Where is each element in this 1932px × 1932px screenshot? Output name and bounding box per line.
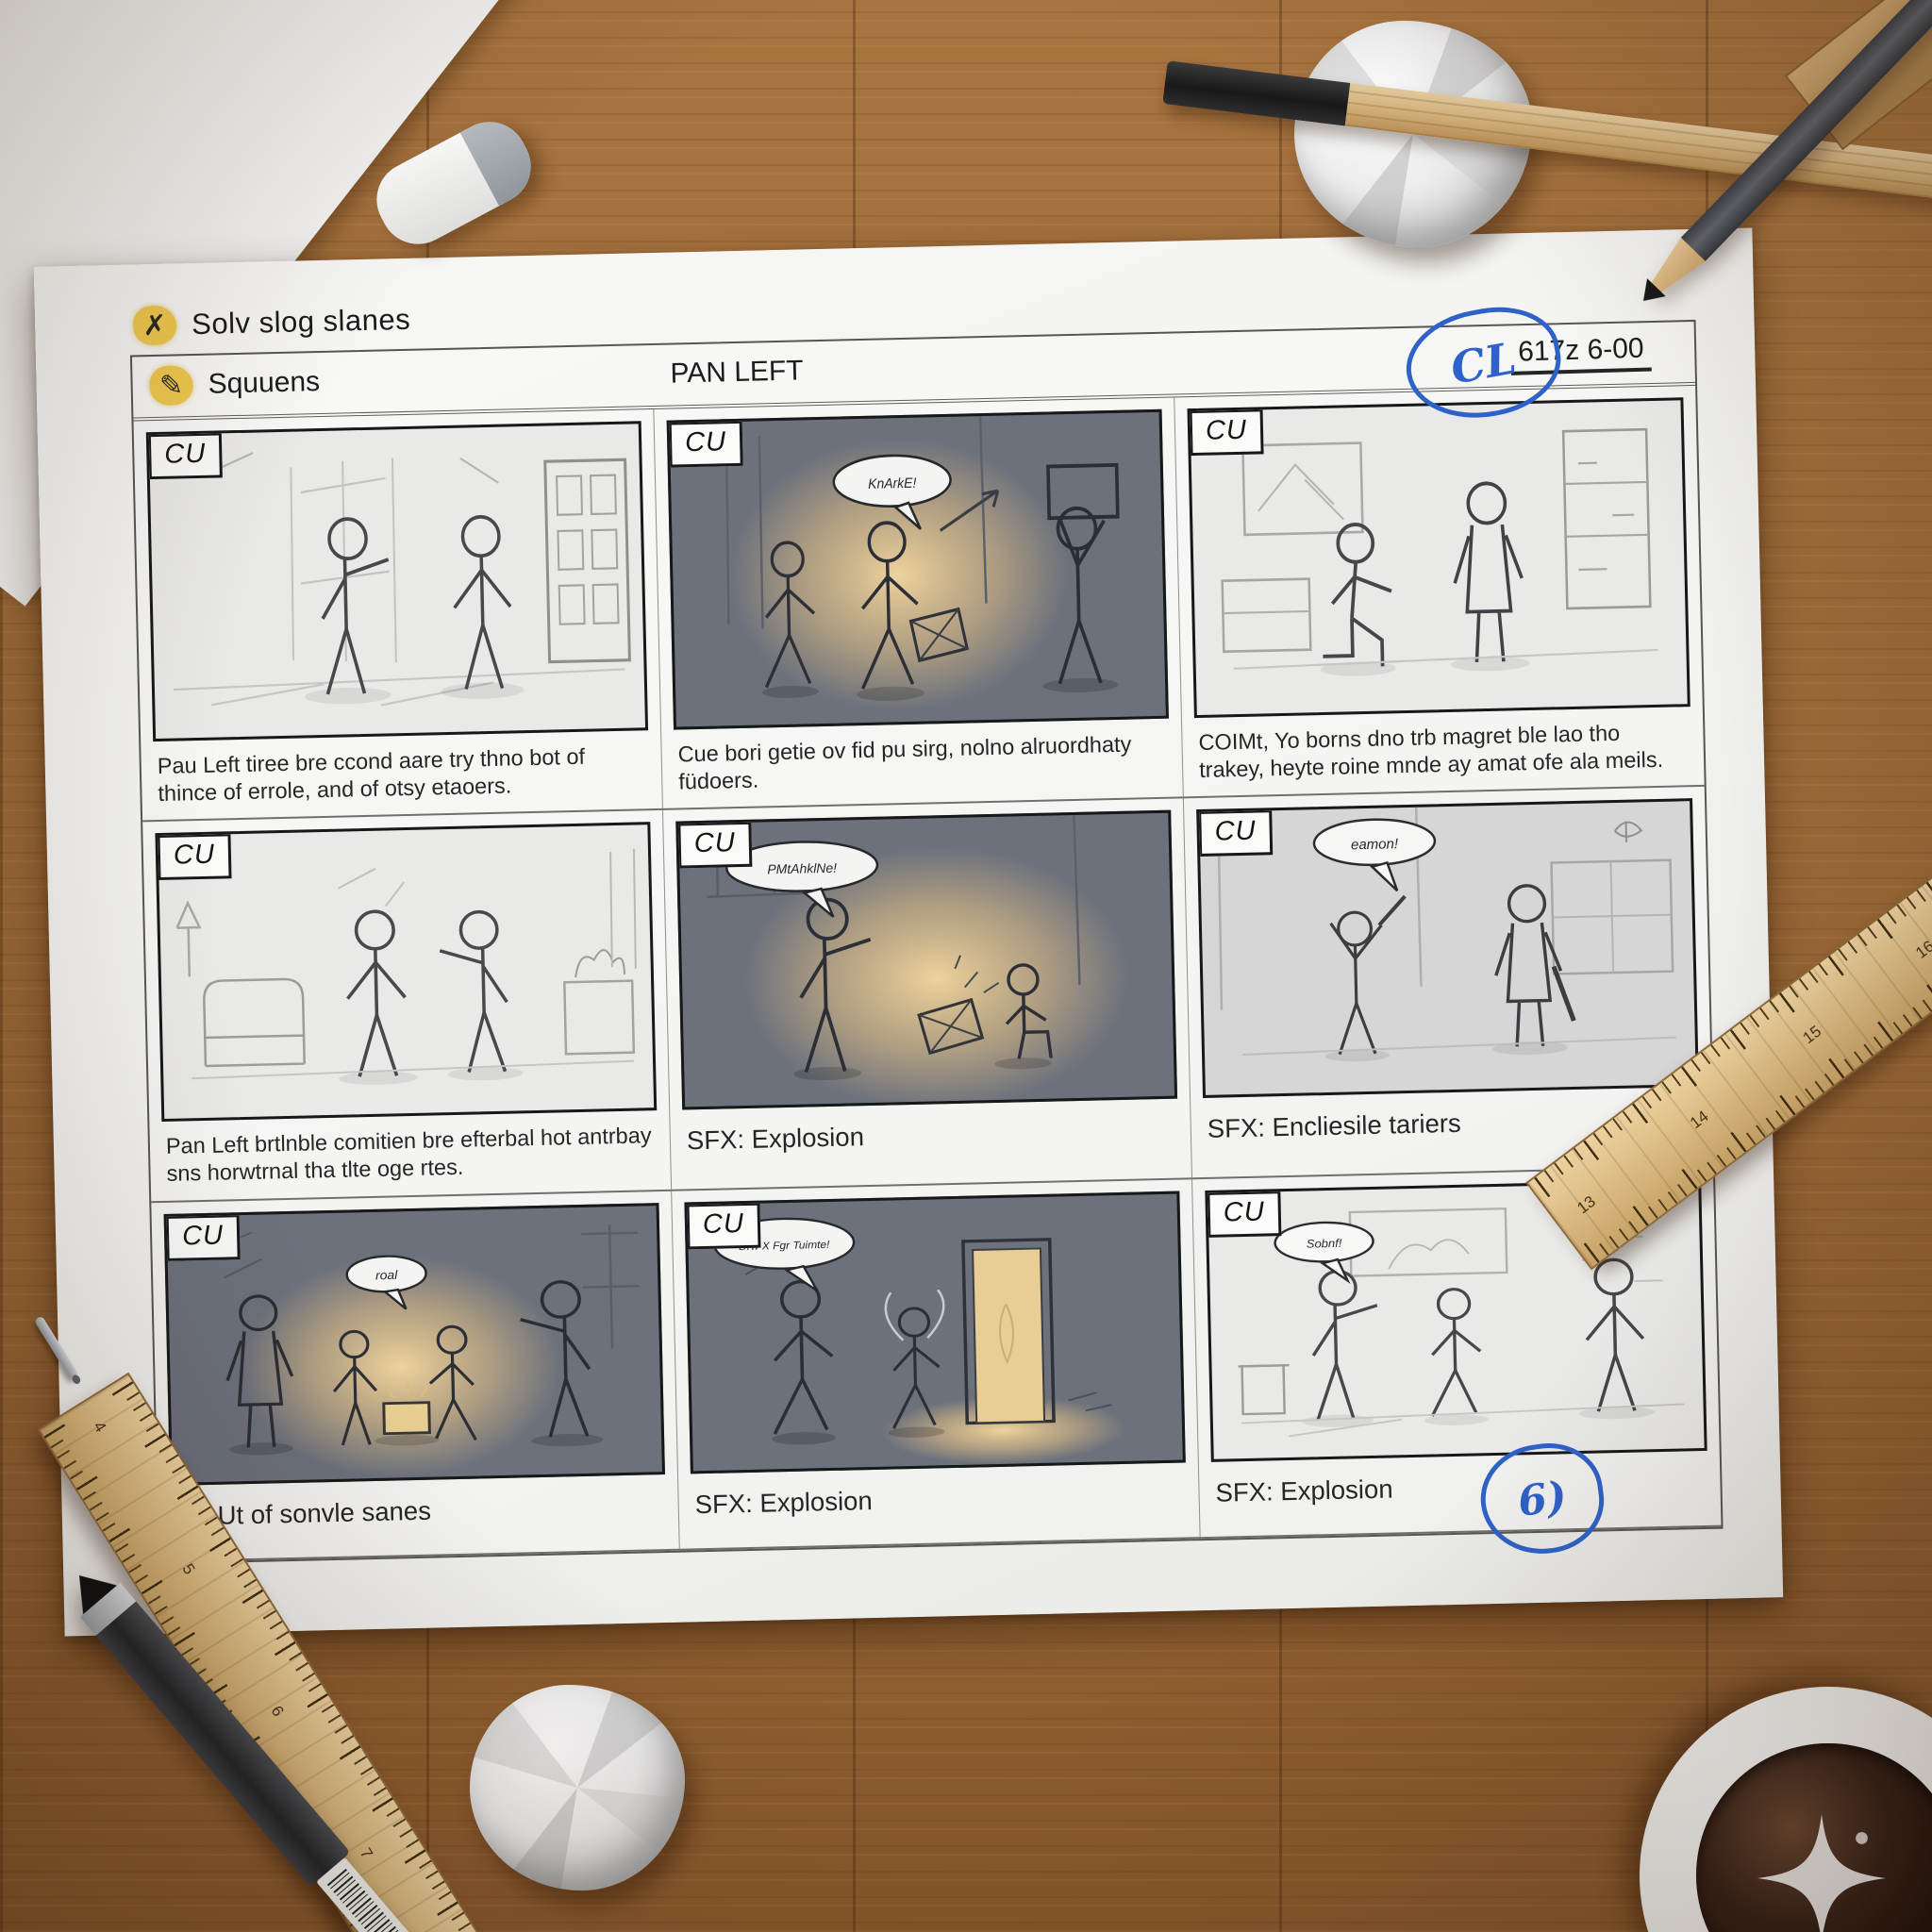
panel-cell: CU [1174, 386, 1703, 721]
panel-caption: Cue bori getie ov fid pu sirg, nolno alr… [661, 721, 1184, 808]
storyboard-sheet: ✗ Solv slog slanes ✎ Squuens PAN LEFT 61… [34, 228, 1783, 1637]
panel-cell: CU [672, 1179, 1199, 1476]
panel-cell: CU [134, 409, 662, 744]
speech-bubble-text: eamon! [1351, 836, 1399, 853]
camera-note-cell: PAN LEFT [653, 333, 1174, 406]
panel-caption: SFX: Explosion [1199, 1453, 1722, 1537]
panel-row-3: CU [151, 1167, 1719, 1488]
storyboard-panel-3: CU [1187, 397, 1690, 718]
panel-2-sketch: KnArkE! [670, 412, 1166, 727]
shot-label: CU [148, 432, 223, 479]
speech-bubble-text: PMtAhklNe! [767, 860, 837, 877]
panel-cell: CU [654, 397, 1182, 732]
storyboard-panel-7: CU [164, 1203, 665, 1486]
panel-caption: Pan Left brtlnble comitien bre efterbal … [149, 1113, 672, 1201]
speech-bubble-text: KnArkE! [868, 475, 917, 492]
shot-label: CU [1207, 1191, 1281, 1238]
subtitle-cell: ✎ Squuens [132, 345, 654, 418]
panel-3-sketch [1191, 400, 1688, 715]
panel-6-sketch: eamon! [1199, 801, 1696, 1095]
crumpled-paper-ball-bottom [470, 1685, 685, 1890]
panel-7-sketch: roal [167, 1206, 662, 1483]
shot-label: CU [1190, 408, 1264, 456]
shot-label: CU [1198, 809, 1273, 857]
storyboard-title: Solv slog slanes [192, 303, 411, 341]
storyboard-panel-2: CU [667, 409, 1169, 730]
panel-row-2: CU [142, 787, 1711, 1124]
storyboard-layout: ✗ Solv slog slanes ✎ Squuens PAN LEFT 61… [129, 267, 1724, 1564]
shot-label: CU [686, 1202, 760, 1249]
shot-label: CU [166, 1214, 241, 1261]
panel-5-sketch: PMtAhklNe! [678, 813, 1174, 1108]
panel-caption: SFX: Explosion [670, 1102, 1192, 1190]
panel-cell: CU [663, 799, 1191, 1113]
speech-bubble-text: roal [375, 1268, 399, 1282]
shot-label: CU [669, 421, 743, 468]
sparkle-icon [1741, 1798, 1902, 1932]
storyboard-panel-4: CU [155, 822, 657, 1122]
storyboard-subtitle: Squuens [208, 366, 320, 401]
shot-label: CU [157, 834, 231, 881]
storyboard-panel-8: CU [684, 1191, 1185, 1474]
panel-cell: CU [142, 810, 670, 1124]
storyboard-table: ✎ Squuens PAN LEFT 617z 6-00 CU [130, 320, 1724, 1564]
panel-cell: CU [1184, 787, 1711, 1101]
shot-label: CU [677, 822, 752, 869]
speech-bubble-text: Sobnf! [1307, 1237, 1342, 1250]
panel-caption: SFX: Explosion [678, 1465, 1201, 1549]
panel-8-sketch: Drw X Fgr Tuimte! [687, 1193, 1182, 1471]
highlight-bolt-icon: ✗ [133, 305, 177, 345]
storyboard-panel-6: CU [1196, 798, 1699, 1098]
panel-4-sketch [158, 824, 654, 1119]
panel-caption: COIMt, Yo borns dno trb magret ble lao t… [1182, 709, 1705, 797]
storyboard-panel-1: CU [146, 421, 648, 741]
storyboard-panel-5: CU [675, 810, 1177, 1110]
panel-1-sketch [149, 424, 645, 739]
panel-cell: CU [151, 1191, 678, 1488]
desk-scene: ✗ Solv slog slanes ✎ Squuens PAN LEFT 61… [0, 0, 1932, 1932]
camera-note: PAN LEFT [670, 355, 804, 390]
panel-caption: Pau Left tiree bre ccond aare try thno b… [141, 733, 663, 821]
panel-row-1: CU [134, 386, 1703, 744]
highlight-pen-icon: ✎ [149, 365, 193, 406]
